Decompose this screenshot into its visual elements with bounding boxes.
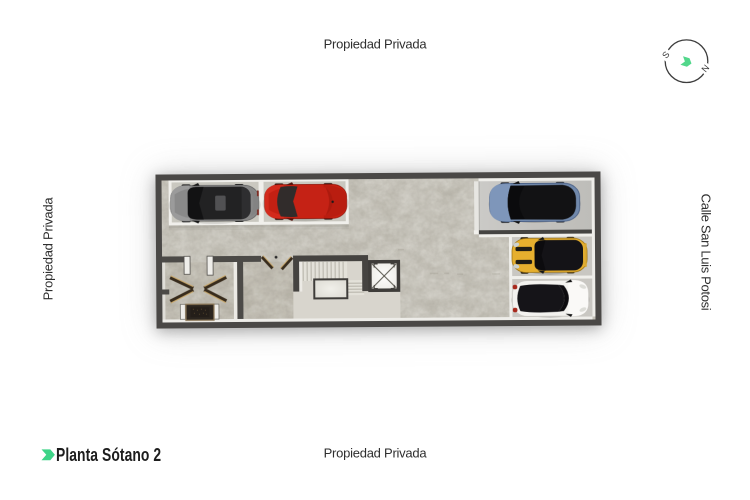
svg-text:N: N bbox=[700, 63, 712, 74]
svg-text:S: S bbox=[660, 49, 672, 60]
